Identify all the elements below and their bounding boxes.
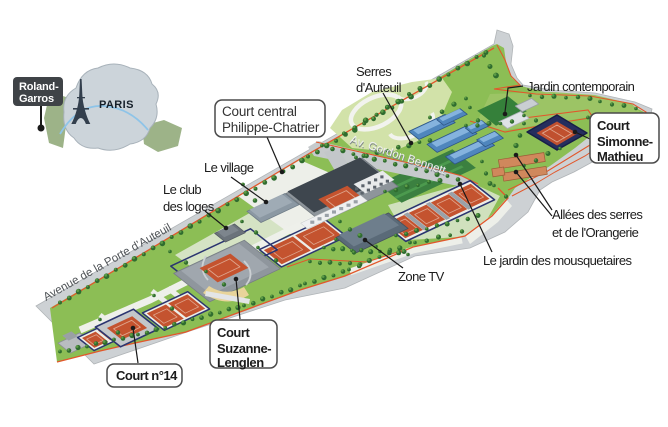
svg-text:Court: Court [217, 325, 251, 340]
svg-text:Court n°14: Court n°14 [116, 368, 178, 383]
svg-text:Roland-: Roland- [19, 81, 59, 93]
svg-text:des loges: des loges [163, 199, 215, 214]
svg-text:Serres: Serres [356, 64, 392, 79]
svg-text:Le jardin des mousquetaires: Le jardin des mousquetaires [483, 253, 633, 268]
svg-text:et de l'Orangerie: et de l'Orangerie [552, 225, 639, 240]
svg-text:d'Auteuil: d'Auteuil [356, 80, 402, 95]
svg-text:Allées des serres: Allées des serres [552, 207, 643, 222]
svg-text:Zone TV: Zone TV [398, 269, 445, 284]
svg-text:Philippe-Chatrier: Philippe-Chatrier [222, 120, 320, 135]
svg-text:Court central: Court central [222, 104, 297, 119]
svg-text:PARIS: PARIS [99, 99, 134, 111]
svg-text:Jardin contemporain: Jardin contemporain [527, 79, 635, 94]
svg-text:Suzanne-: Suzanne- [217, 341, 271, 356]
svg-text:Court: Court [597, 118, 631, 133]
svg-text:Le village: Le village [204, 160, 254, 175]
svg-text:Garros: Garros [19, 93, 54, 105]
svg-text:Lenglen: Lenglen [217, 355, 264, 370]
svg-text:Le club: Le club [163, 182, 201, 197]
svg-text:Mathieu: Mathieu [597, 149, 643, 164]
svg-text:Simonne-: Simonne- [597, 134, 653, 149]
